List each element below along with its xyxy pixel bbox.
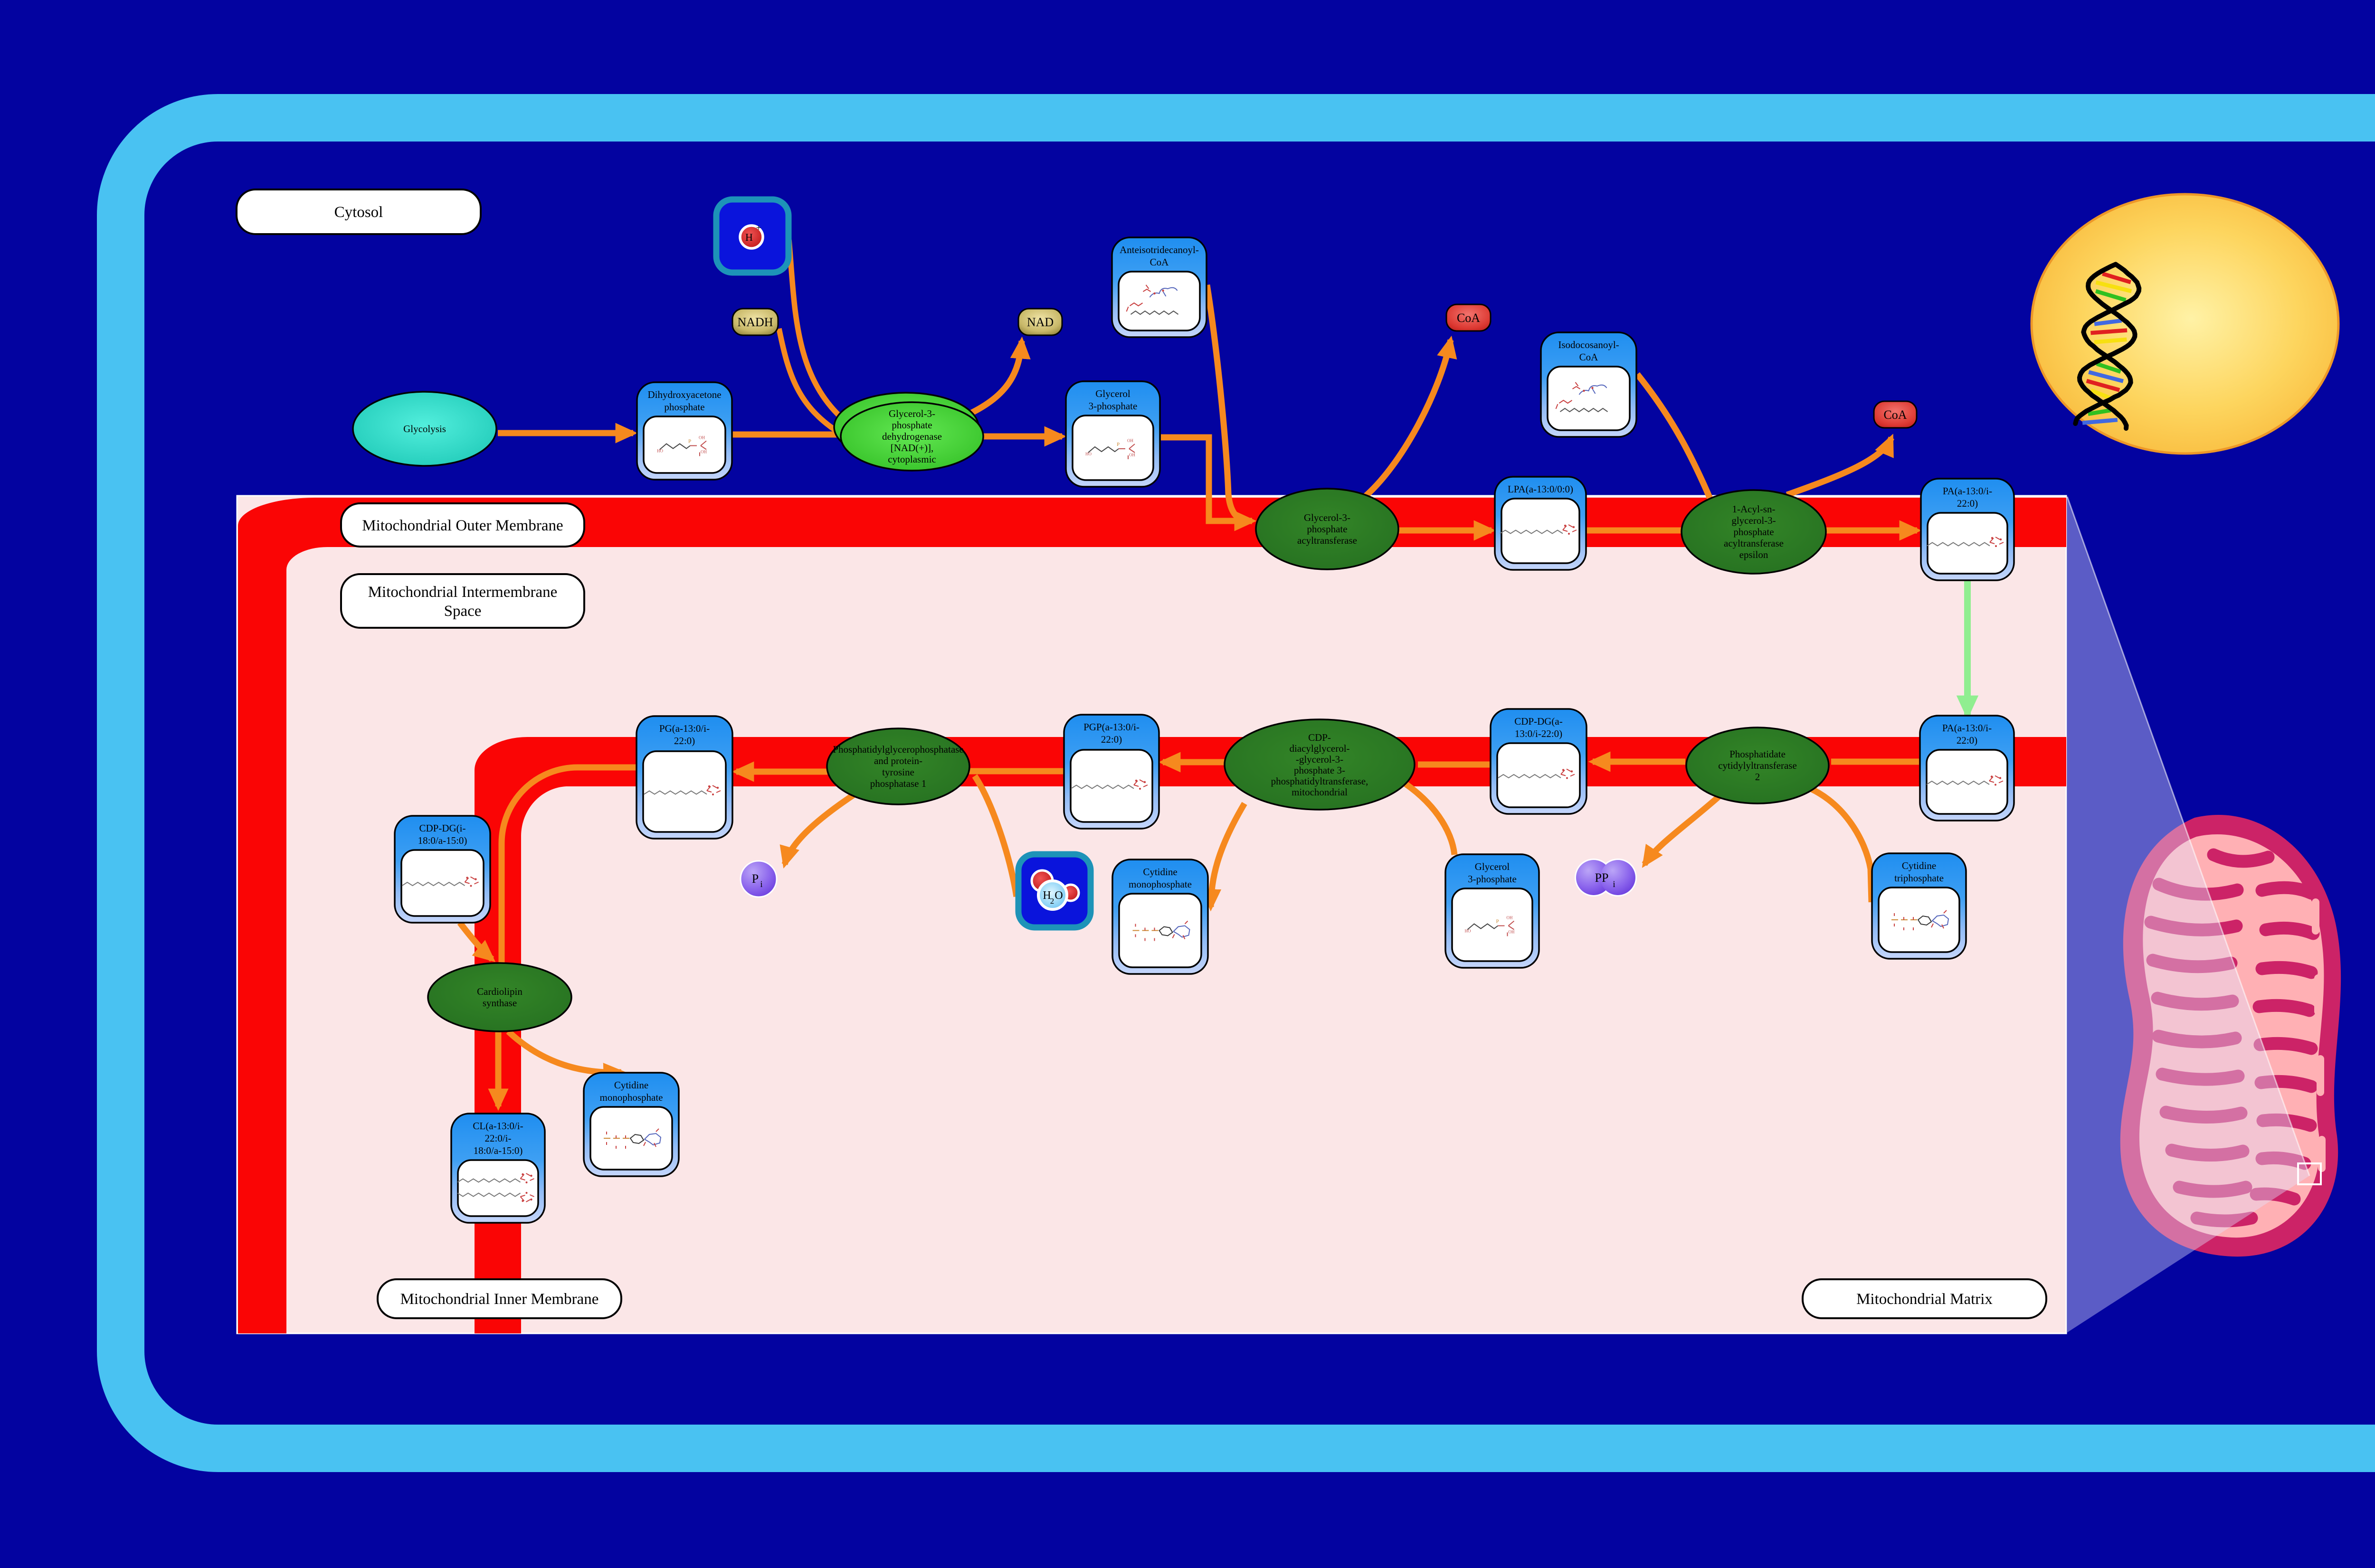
svg-text:Space: Space: [444, 603, 482, 620]
svg-text:OH: OH: [1509, 930, 1515, 935]
svg-text:P: P: [688, 439, 691, 444]
svg-text:Cytidine: Cytidine: [614, 1079, 648, 1091]
svg-text:Cytosol: Cytosol: [334, 204, 383, 221]
svg-text:2: 2: [1755, 771, 1760, 783]
svg-text:i: i: [760, 879, 762, 889]
svg-text:22:0): 22:0): [1957, 735, 1977, 746]
svg-text:cytoplasmic: cytoplasmic: [888, 453, 936, 465]
svg-text:Mitochondrial Outer Membrane: Mitochondrial Outer Membrane: [362, 517, 563, 534]
svg-text:18:0/a-15:0): 18:0/a-15:0): [474, 1145, 523, 1156]
svg-text:CDP-DG(a-: CDP-DG(a-: [1514, 716, 1562, 727]
svg-text:22:0/i-: 22:0/i-: [485, 1133, 512, 1144]
svg-text:phosphatase 1: phosphatase 1: [870, 778, 926, 789]
svg-text:1-Acyl-sn-: 1-Acyl-sn-: [1732, 503, 1776, 515]
svg-text:epsilon: epsilon: [1739, 549, 1768, 560]
svg-text:OH: OH: [1507, 916, 1513, 920]
svg-text:glycerol-3-: glycerol-3-: [1731, 515, 1776, 526]
svg-text:CDP-DG(i-: CDP-DG(i-: [419, 822, 466, 834]
svg-text:NADH: NADH: [737, 315, 773, 329]
svg-text:Glycerol: Glycerol: [1475, 861, 1510, 872]
svg-text:13:0/i-22:0): 13:0/i-22:0): [1515, 728, 1562, 739]
svg-text:Cytidine: Cytidine: [1143, 866, 1177, 878]
svg-text:Glycerol-3-: Glycerol-3-: [889, 408, 935, 419]
svg-text:H: H: [745, 231, 753, 243]
svg-text:18:0/a-15:0): 18:0/a-15:0): [418, 835, 467, 846]
svg-text:Cardiolipin: Cardiolipin: [477, 986, 522, 997]
svg-text:Glycolysis: Glycolysis: [403, 423, 446, 435]
svg-text:+: +: [756, 223, 761, 233]
svg-text:3-phosphate: 3-phosphate: [1468, 873, 1517, 885]
svg-text:OH: OH: [1127, 438, 1133, 443]
svg-text:synthase: synthase: [483, 997, 517, 1009]
svg-text:Mitochondrial Matrix: Mitochondrial Matrix: [1856, 1291, 1993, 1308]
svg-text:Anteisotridecanoyl-: Anteisotridecanoyl-: [1120, 244, 1199, 255]
svg-text:tyrosine: tyrosine: [882, 766, 914, 778]
svg-text:PGP(a-13:0/i-: PGP(a-13:0/i-: [1083, 721, 1140, 733]
svg-text:acyltransferase: acyltransferase: [1297, 535, 1357, 546]
svg-text:LPA(a-13:0/0:0): LPA(a-13:0/0:0): [1508, 483, 1573, 495]
svg-text:mitochondrial: mitochondrial: [1292, 786, 1348, 798]
svg-text:dehydrogenase: dehydrogenase: [882, 431, 942, 442]
svg-text:-glycerol-3-: -glycerol-3-: [1296, 754, 1343, 765]
svg-text:phosphatidyltransferase,: phosphatidyltransferase,: [1271, 775, 1368, 787]
svg-text:Mitochondrial Inner Membrane: Mitochondrial Inner Membrane: [400, 1291, 599, 1308]
svg-text:Phosphatidylglycerophosphatase: Phosphatidylglycerophosphatase: [833, 744, 963, 755]
svg-text:OH: OH: [699, 435, 705, 440]
svg-text:CDP-: CDP-: [1308, 732, 1331, 743]
svg-text:phosphate: phosphate: [1733, 526, 1774, 538]
svg-text:CoA: CoA: [1579, 351, 1599, 363]
svg-text:and protein-: and protein-: [874, 755, 922, 766]
svg-text:PP: PP: [1595, 871, 1609, 885]
svg-text:monophosphate: monophosphate: [1129, 878, 1192, 890]
svg-text:O: O: [1054, 889, 1063, 902]
svg-text:Glycerol: Glycerol: [1095, 388, 1130, 399]
svg-text:Mitochondrial Intermembrane: Mitochondrial Intermembrane: [368, 584, 558, 601]
svg-text:OH: OH: [701, 450, 707, 454]
svg-text:22:0): 22:0): [1957, 498, 1978, 509]
svg-text:OH: OH: [1129, 453, 1135, 457]
svg-text:phosphate: phosphate: [892, 419, 932, 431]
svg-text:PG(a-13:0/i-: PG(a-13:0/i-: [659, 723, 710, 734]
svg-text:22:0): 22:0): [1101, 734, 1122, 745]
svg-text:Isodocosanoyl-: Isodocosanoyl-: [1558, 339, 1619, 350]
svg-text:diacylglycerol-: diacylglycerol-: [1289, 743, 1349, 754]
svg-text:Glycerol-3-: Glycerol-3-: [1304, 512, 1350, 523]
svg-text:phosphate 3-: phosphate 3-: [1294, 765, 1345, 776]
svg-text:P: P: [752, 872, 759, 886]
svg-text:PA(a-13:0/i-: PA(a-13:0/i-: [1942, 722, 1992, 734]
svg-text:PA(a-13:0/i-: PA(a-13:0/i-: [1943, 485, 1992, 497]
svg-text:[NAD(+)],: [NAD(+)],: [891, 442, 934, 453]
svg-text:3-phosphate: 3-phosphate: [1089, 400, 1138, 412]
svg-text:CoA: CoA: [1457, 311, 1480, 325]
svg-text:HO: HO: [1465, 929, 1471, 934]
svg-text:CoA: CoA: [1883, 408, 1907, 422]
svg-text:HO: HO: [657, 449, 663, 453]
svg-text:CL(a-13:0/i-: CL(a-13:0/i-: [473, 1120, 523, 1132]
svg-text:phosphate: phosphate: [664, 401, 704, 413]
svg-text:P: P: [1496, 919, 1499, 925]
svg-text:acyltransferase: acyltransferase: [1724, 538, 1784, 549]
svg-text:cytidylyltransferase: cytidylyltransferase: [1718, 760, 1797, 771]
svg-text:HO: HO: [1085, 452, 1092, 456]
svg-text:Phosphatidate: Phosphatidate: [1729, 748, 1786, 760]
svg-text:NAD: NAD: [1027, 315, 1054, 329]
svg-text:22:0): 22:0): [674, 735, 695, 746]
svg-text:Dihydroxyacetone: Dihydroxyacetone: [647, 389, 721, 400]
svg-text:triphosphate: triphosphate: [1894, 872, 1944, 884]
svg-text:CoA: CoA: [1150, 256, 1169, 268]
svg-text:i: i: [1613, 879, 1615, 889]
svg-text:2: 2: [1050, 897, 1054, 906]
svg-text:phosphate: phosphate: [1307, 523, 1347, 535]
svg-text:P: P: [1117, 442, 1120, 447]
svg-text:Cytidine: Cytidine: [1902, 860, 1936, 871]
svg-text:monophosphate: monophosphate: [600, 1092, 663, 1103]
